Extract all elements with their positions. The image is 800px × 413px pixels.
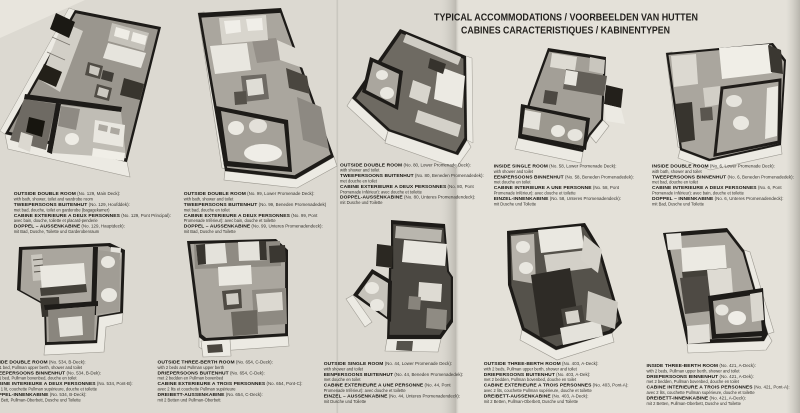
svg-text:mit Dusche und Toilette: mit Dusche und Toilette: [340, 200, 383, 205]
svg-text:Promenade Inférieur): avec dou: Promenade Inférieur): avec douche et toi…: [324, 388, 407, 393]
svg-text:CABINES CARACTERISTIQUES / KAB: CABINES CARACTERISTIQUES / KABINENTYPEN: [461, 26, 670, 37]
svg-text:met douche en toilet: met douche en toilet: [340, 179, 378, 184]
svg-text:Promenade Inférieur): avec bai: Promenade Inférieur): avec bain, douche …: [652, 191, 745, 196]
svg-text:mit Bad, Dusche und Toilette: mit Bad, Dusche und Toilette: [184, 229, 237, 234]
svg-text:met bad, douche en toilet: met bad, douche en toilet: [184, 207, 231, 212]
svg-text:met 1 bed, Pullman bovenbed, d: met 1 bed, Pullman bovenbed, douche en t…: [0, 376, 77, 381]
svg-text:with 1 bed, Pullman upper bert: with 1 bed, Pullman upper berth, shower …: [0, 365, 83, 370]
svg-text:met douche en toilet: met douche en toilet: [494, 180, 532, 185]
svg-text:mit Bad, Dusche und Toilette: mit Bad, Dusche und Toilette: [652, 201, 705, 206]
svg-text:met 2 bedden, Pullman bovenbed: met 2 bedden, Pullman bovenbed, douche e…: [647, 379, 740, 384]
svg-text:Promenade Inférieur): avec bai: Promenade Inférieur): avec bain, douche …: [184, 218, 277, 223]
svg-text:with bath, shower and toilet: with bath, shower and toilet: [184, 197, 234, 202]
svg-text:mit 1 Bett, Pullman-Oberbett,: mit 1 Bett, Pullman-Oberbett, Dusche und…: [0, 397, 82, 402]
svg-text:with bath, shower and toilet: with bath, shower and toilet: [652, 169, 702, 174]
svg-text:met 2 bedden, Pullman bovenbed: met 2 bedden, Pullman bovenbed, douche e…: [484, 377, 577, 382]
svg-text:met douche en toilet: met douche en toilet: [324, 377, 362, 382]
svg-text:mit Dusche und Toilette: mit Dusche und Toilette: [324, 399, 367, 404]
svg-text:Promenade Inférieur): avec dou: Promenade Inférieur): avec douche et toi…: [340, 189, 423, 194]
svg-text:with shower and toilet: with shower and toilet: [494, 169, 534, 174]
svg-text:mit Dusche und Toilette: mit Dusche und Toilette: [494, 201, 537, 206]
svg-text:with bath, shower, toilet and: with bath, shower, toilet and wardrobe r…: [14, 197, 94, 202]
svg-text:TYPICAL ACCOMMODATIONS / VOORB: TYPICAL ACCOMMODATIONS / VOORBEELDEN VAN…: [434, 13, 698, 24]
svg-text:avec bain, douche, toilette et: avec bain, douche, toilette et placard-p…: [14, 218, 99, 223]
svg-text:met bad, douche en toilet: met bad, douche en toilet: [652, 180, 699, 185]
svg-text:mit Bad, Dusche, Toilette und: mit Bad, Dusche, Toilette und Garderoben…: [14, 229, 100, 234]
svg-text:mit 2 Betten, Pullman-Oberbett: mit 2 Betten, Pullman-Oberbett, Dusche u…: [647, 401, 742, 406]
svg-text:met 2 bedden en Pullman bovenb: met 2 bedden en Pullman bovenbed: [158, 376, 224, 381]
svg-text:with shower and toilet: with shower and toilet: [324, 366, 364, 371]
svg-text:Promenade Inférieur): avec dou: Promenade Inférieur): avec douche et toi…: [494, 191, 577, 196]
svg-text:with 2 beds, Pullman upper ber: with 2 beds, Pullman upper berth, shower…: [484, 366, 578, 371]
svg-text:avec 2 lits, couchette Pullman: avec 2 lits, couchette Pullman supérieur…: [484, 388, 593, 393]
svg-text:with 2 beds and Pullman upper: with 2 beds and Pullman upper berth: [158, 365, 225, 370]
svg-text:avec 2 lits, couchette Pullman: avec 2 lits, couchette Pullman supérieur…: [647, 390, 756, 395]
svg-text:avec 2 lits et couchette Pullm: avec 2 lits et couchette Pullman supérie…: [158, 387, 237, 392]
svg-text:with 2 beds, Pullman upper ber: with 2 beds, Pullman upper berth, shower…: [647, 368, 741, 373]
svg-text:avec 1 lit, couchette Pullman: avec 1 lit, couchette Pullman supérieure…: [0, 387, 98, 392]
svg-text:met bad, douche, toilet en gar: met bad, douche, toilet en garderobe (ba…: [14, 207, 110, 212]
svg-text:mit 2 Betten und Pullman-Oberb: mit 2 Betten und Pullman-Oberbett: [158, 397, 222, 402]
svg-text:with shower and toilet: with shower and toilet: [340, 168, 380, 173]
svg-text:mit 2 Betten, Pullman-Oberbett: mit 2 Betten, Pullman-Oberbett, Dusche u…: [484, 399, 579, 404]
